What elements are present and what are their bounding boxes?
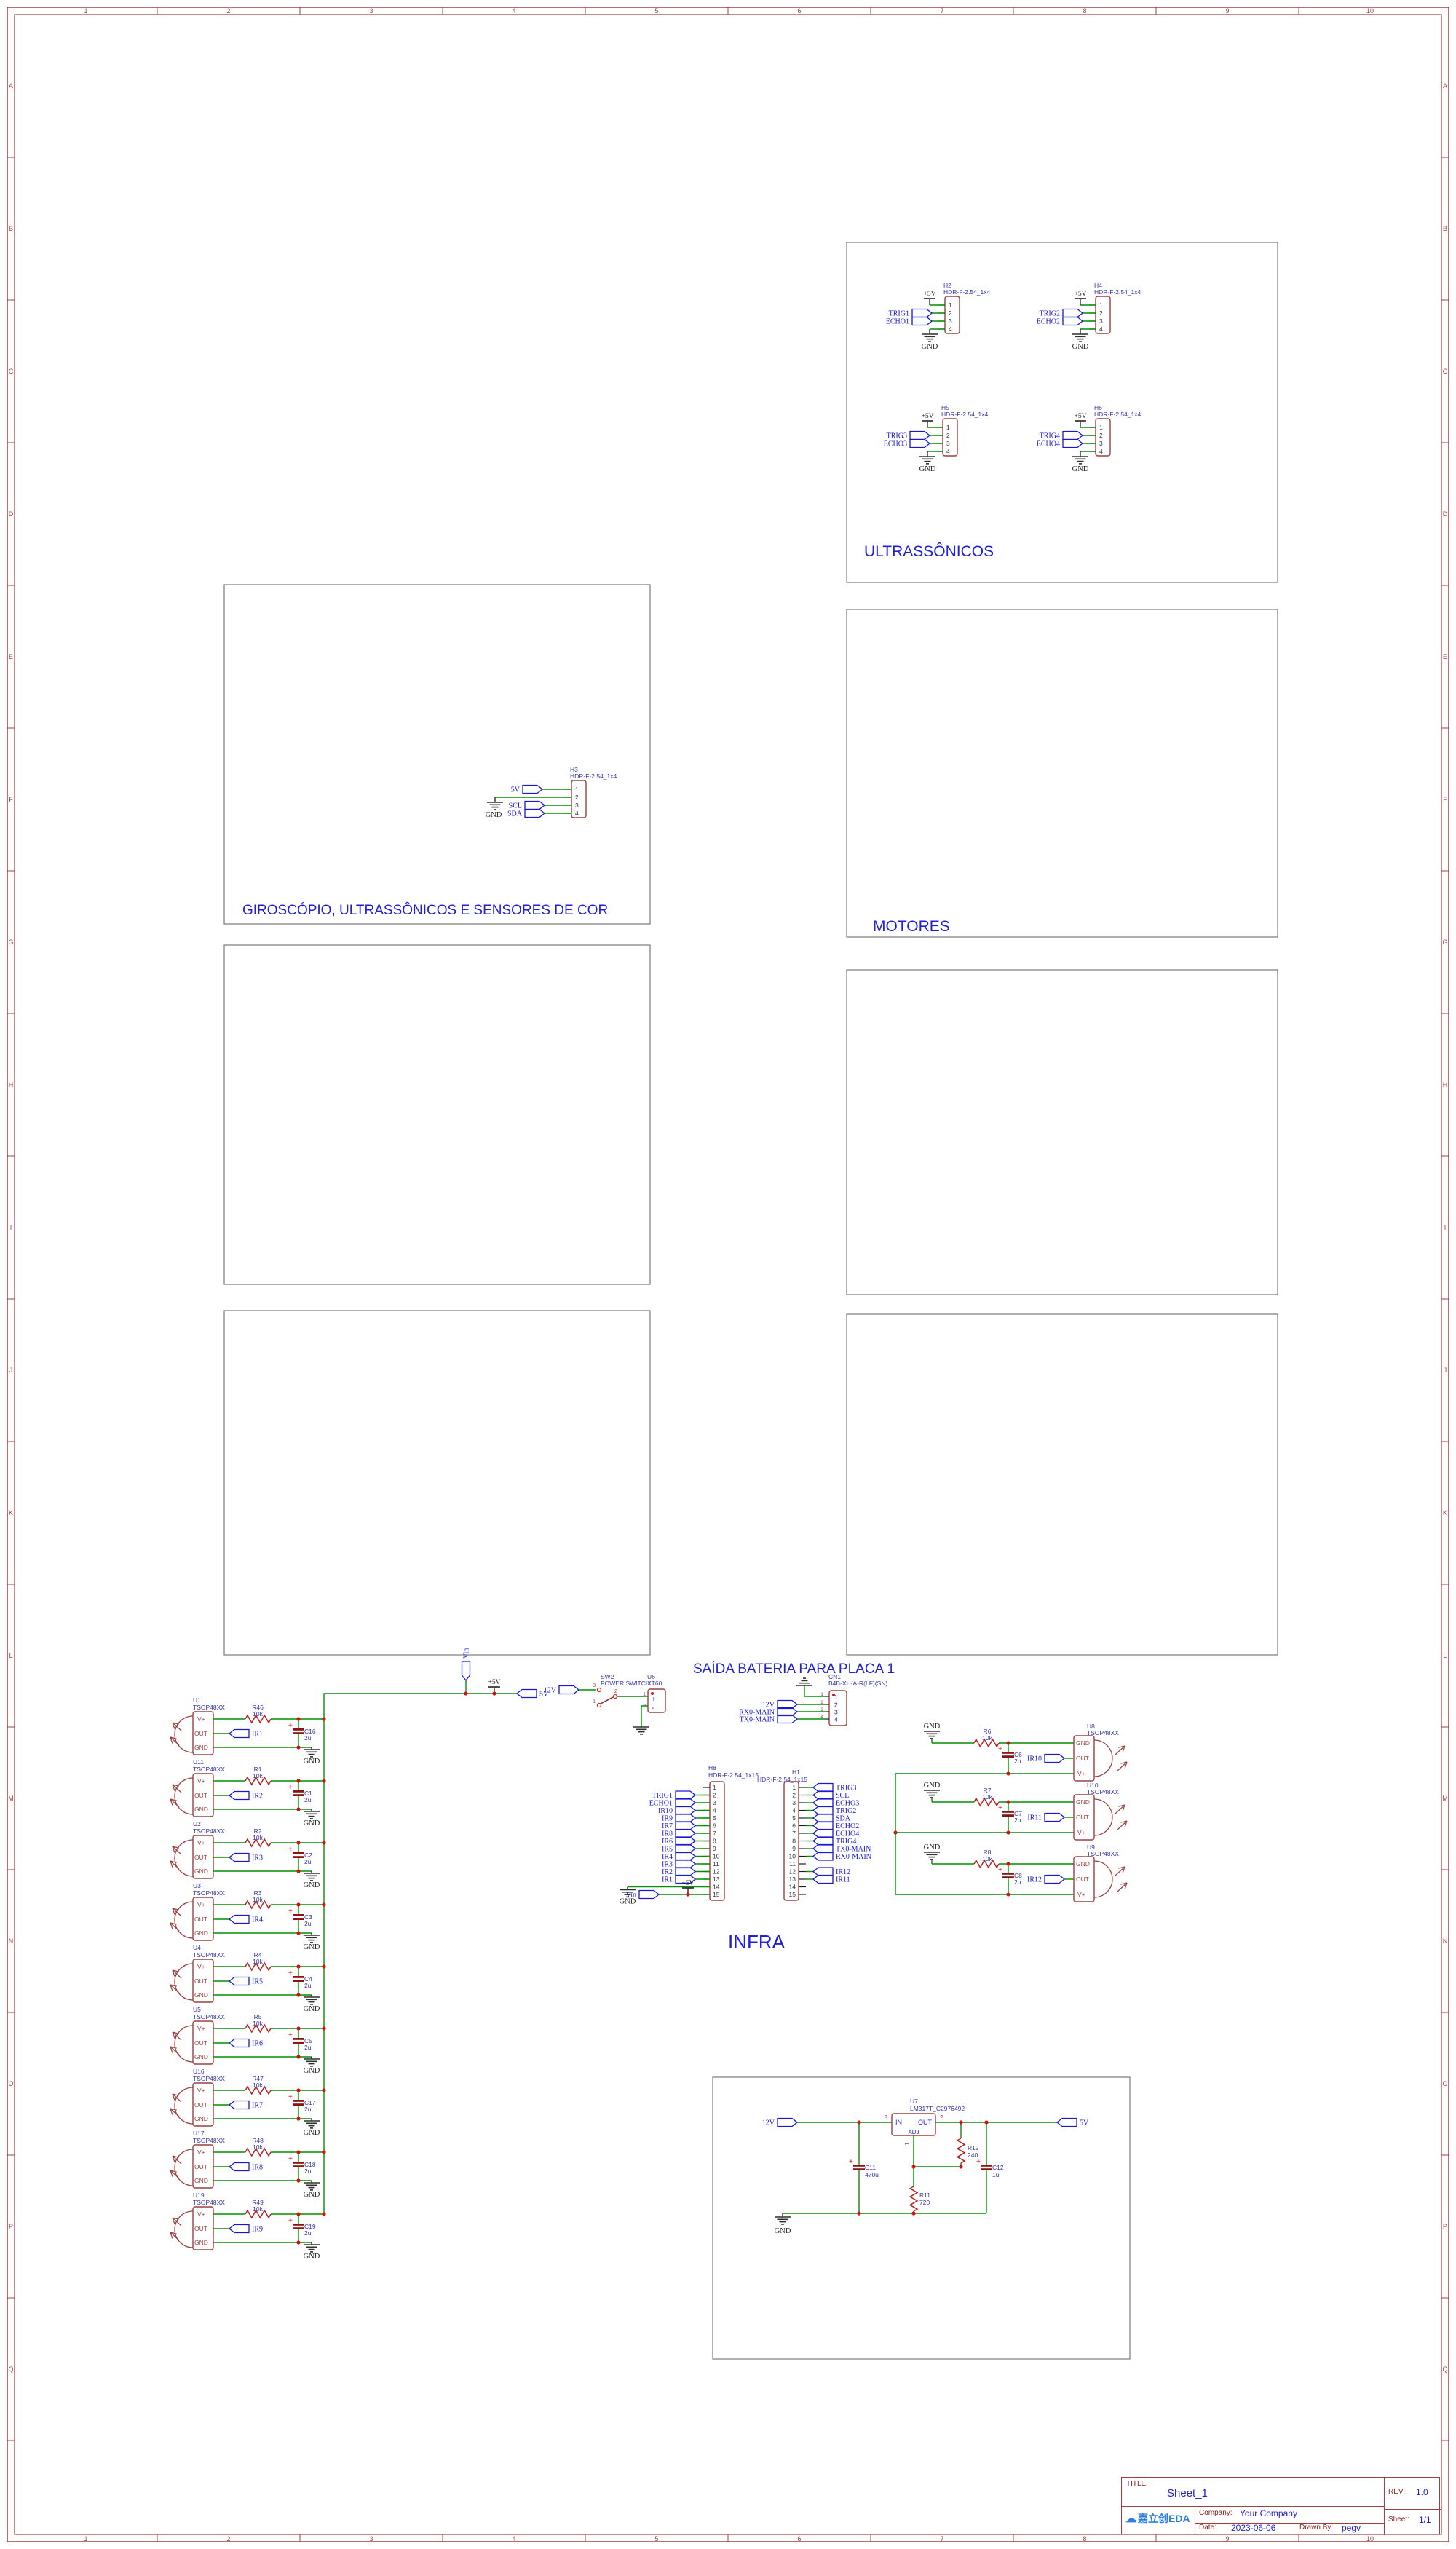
pin-name: OUT xyxy=(194,1730,207,1737)
pin-name: V+ xyxy=(1077,1891,1085,1898)
frame-col-label: 7 xyxy=(940,2535,943,2542)
frame-col-label: 4 xyxy=(512,2535,515,2542)
gnd-label: GND xyxy=(924,1782,941,1790)
frame-row-label: B xyxy=(1443,225,1447,232)
tsop-dome xyxy=(175,2026,193,2062)
net-flag-shape xyxy=(813,1799,833,1807)
p5-label: +5V xyxy=(922,413,934,420)
junction-dot xyxy=(296,1807,300,1811)
date-label: Date: xyxy=(1199,2524,1216,2532)
net-name: TRIG2 xyxy=(836,1807,856,1815)
junction-dot xyxy=(857,2120,860,2124)
header-body xyxy=(571,780,586,818)
pin-name: V+ xyxy=(197,1963,205,1970)
pin-name: V+ xyxy=(197,2210,205,2218)
header-body xyxy=(943,419,957,456)
net-name: SDA xyxy=(836,1815,851,1823)
net-name: IR4 xyxy=(662,1853,673,1861)
pin-name: GND xyxy=(194,1806,208,1813)
tsop-dome xyxy=(175,1840,193,1876)
frame-col-label: 6 xyxy=(797,2535,801,2542)
cap-polarity: + xyxy=(288,2217,293,2225)
pin-name: V+ xyxy=(197,2149,205,2156)
gnd-label: GND xyxy=(924,1723,941,1731)
tsop-U3[interactable]: U3TSOP48XXV+OUTGNDR310kIR4+C32uGND xyxy=(170,1882,326,1951)
title-label: TITLE: xyxy=(1126,2480,1148,2488)
component-value: 2u xyxy=(1014,1758,1021,1765)
net-flag-shape xyxy=(676,1860,695,1868)
net-flag-TRIG1[interactable]: TRIG1 xyxy=(889,309,932,318)
net-flag-IR11[interactable]: IR11 xyxy=(1027,1814,1064,1822)
net-flag-IR1[interactable]: IR1 xyxy=(229,1730,263,1739)
net-name: IR7 xyxy=(662,1822,673,1830)
frame-col-label: 8 xyxy=(1083,7,1086,15)
pin-number: 8 xyxy=(792,1838,796,1845)
gnd-label: GND xyxy=(922,343,938,351)
component-value: 10k xyxy=(253,2082,263,2089)
p5-label: +5V xyxy=(1075,413,1087,420)
tsop-dome xyxy=(1094,1740,1112,1777)
tsop-U1[interactable]: U1TSOP48XXV+OUTGNDR4610kIR1+C162uGND xyxy=(170,1696,326,1766)
resistor-zigzag xyxy=(910,2186,917,2211)
frame-row-label: E xyxy=(1443,653,1447,660)
board-connector-CN1[interactable]: CN1B4B-XH-A-R(LF)(SN)11223344 xyxy=(820,1673,887,1726)
net-flag-shape xyxy=(813,1791,833,1799)
section-box-vazio-3 xyxy=(224,1311,650,1655)
junction-dot xyxy=(296,2212,300,2216)
pin-number: 4 xyxy=(834,1716,838,1723)
net-name: ECHO1 xyxy=(886,318,909,326)
header-H8[interactable]: H8HDR-F-2.54_1x15123456789101112131415TR… xyxy=(620,1764,759,1906)
junction-dot xyxy=(1006,1830,1010,1834)
junction-dot xyxy=(1006,1771,1010,1775)
header-H4[interactable]: H4HDR-F-2.54_1x41234+5VTRIG2ECHO2GND xyxy=(1037,282,1142,351)
tsop-U4[interactable]: U4TSOP48XXV+OUTGNDR410kIR5+C42uGND xyxy=(170,1944,326,2013)
pin-name: OUT xyxy=(194,2163,207,2170)
net-flag-IR3[interactable]: IR3 xyxy=(229,1854,263,1862)
pin-name: GND xyxy=(194,2115,208,2122)
net-name: 12V xyxy=(762,2119,775,2127)
net-flag-SCL[interactable]: SCL xyxy=(509,802,545,810)
net-flag-IR10[interactable]: IR10 xyxy=(1027,1755,1064,1763)
net-flag-IR5[interactable]: IR5 xyxy=(229,1977,263,1986)
net-flag-ECHO4[interactable]: ECHO4 xyxy=(1037,440,1083,448)
company-label: Company: xyxy=(1199,2509,1233,2517)
pin-name: - xyxy=(652,1704,654,1712)
frame-row-label: I xyxy=(1444,1224,1447,1231)
logo-text: 嘉立创EDA xyxy=(1138,2513,1190,2524)
component-value: 2u xyxy=(304,1920,312,1927)
junction-dot xyxy=(322,1779,325,1782)
pin-number: 4 xyxy=(946,448,950,455)
pin-number: 4 xyxy=(792,1807,796,1814)
junction-dot xyxy=(296,2150,300,2154)
tsop-dome xyxy=(175,2149,193,2186)
net-flag-TRIG3[interactable]: TRIG3 xyxy=(887,432,930,440)
frame-col-label: 5 xyxy=(654,2535,658,2542)
tsop-U11[interactable]: U11TSOP48XXV+OUTGNDR110kIR2+C12uGND xyxy=(170,1758,326,1827)
net-flag-TX0-MAIN[interactable]: TX0-MAIN xyxy=(740,1715,797,1724)
net-flag-IR8[interactable]: IR8 xyxy=(229,2163,263,2172)
pin-number: 5 xyxy=(792,1814,796,1822)
frame-row-label: P xyxy=(9,2223,13,2230)
pin-number: 11 xyxy=(713,1860,719,1868)
net-flag-shape xyxy=(1045,1755,1064,1763)
net-flag-shape xyxy=(1045,1814,1064,1822)
net-flag-IR12[interactable]: IR12 xyxy=(1027,1876,1064,1884)
pin-number: 4 xyxy=(713,1807,716,1814)
net-flag-shape xyxy=(676,1868,695,1876)
section-box-motores xyxy=(847,609,1278,937)
tsop-U17[interactable]: U17TSOP48XXV+OUTGNDR4810kIR8+C182uGND xyxy=(170,2130,326,2199)
tsop-U19[interactable]: U19TSOP48XXV+OUTGNDR4910kIR9+C192uGND xyxy=(170,2192,326,2261)
ultrasonic-headers: H2HDR-F-2.54_1x41234+5VTRIG1ECHO1GNDH4HD… xyxy=(884,282,1142,473)
pin-number: 2 xyxy=(1099,309,1103,317)
net-flag-IR4[interactable]: IR4 xyxy=(229,1916,263,1924)
section-box-vazio-1 xyxy=(224,945,650,1284)
component-value: 10k xyxy=(253,1710,263,1718)
pin-number: 14 xyxy=(789,1884,796,1891)
net-name: IR12 xyxy=(1027,1876,1042,1884)
junction-dot xyxy=(322,1964,325,1968)
net-name: TRIG3 xyxy=(887,432,907,440)
net-name: IR6 xyxy=(252,2040,263,2048)
net-flag-IR6[interactable]: IR6 xyxy=(229,2039,263,2048)
component-value: TSOP48XX xyxy=(193,1889,225,1897)
component-value: HDR-F-2.54_1x4 xyxy=(1094,411,1142,418)
component-value: 10k xyxy=(982,1734,992,1742)
pin-name: OUT xyxy=(194,2039,207,2047)
pin-name: V+ xyxy=(197,1715,205,1723)
ref-designator: H8 xyxy=(708,1764,716,1771)
pin-number: 2 xyxy=(713,1792,716,1799)
frame-col-label: 7 xyxy=(940,7,943,15)
frame-row-label: E xyxy=(9,653,13,660)
net-flag-ECHO3[interactable]: ECHO3 xyxy=(884,440,930,448)
junction-dot xyxy=(296,1931,300,1935)
component-value: HDR-F-2.54_1x15 xyxy=(757,1776,807,1783)
frame-row-label: C xyxy=(1443,368,1448,375)
tsop-dome xyxy=(175,2087,193,2124)
net-name: IR4 xyxy=(252,1916,263,1924)
component-value: POWER SWITCH xyxy=(601,1680,650,1687)
pin-number: 15 xyxy=(789,1891,796,1898)
ref-designator: U17 xyxy=(193,2130,205,2137)
gnd-label: GND xyxy=(775,2227,791,2235)
pin-number: 8 xyxy=(713,1838,716,1845)
net-flag-5V[interactable]: 5V xyxy=(1057,2119,1089,2127)
net-name: 5V xyxy=(511,786,521,794)
pin-number: 10 xyxy=(789,1853,796,1860)
net-flag-shape xyxy=(676,1799,695,1807)
tsop-U10[interactable]: GNDR710k+C72uIR11U10TSOP48XXGNDOUTV+ xyxy=(895,1782,1127,1840)
ref-designator: R12 xyxy=(968,2144,979,2151)
net-flag-shape xyxy=(910,432,930,440)
junction-dot xyxy=(296,2240,300,2244)
net-name: 5V xyxy=(1080,2119,1089,2127)
junction-dot xyxy=(959,2120,962,2124)
net-flag-shape xyxy=(229,1977,249,1985)
cap-polarity: + xyxy=(288,2155,293,2163)
net-name: Vin xyxy=(626,1892,636,1900)
pin-number: 13 xyxy=(789,1876,796,1883)
pin-number: 4 xyxy=(1099,325,1103,333)
pin-name: V+ xyxy=(197,1777,205,1785)
gnd-label: GND xyxy=(486,811,502,819)
net-flag-shape xyxy=(1063,309,1083,317)
net-flag-IR9[interactable]: IR9 xyxy=(229,2225,263,2234)
frame-row-label: P xyxy=(1443,2223,1447,2230)
net-name: TRIG3 xyxy=(836,1785,856,1793)
net-name: IR1 xyxy=(662,1876,673,1884)
pin-number: 12 xyxy=(713,1868,720,1876)
net-flag-5V[interactable]: 5V xyxy=(511,786,542,794)
section-label: SAÍDA BATERIA PARA PLACA 1 xyxy=(693,1661,895,1677)
tsop-array-right: GNDR610k+C62uIR10U8TSOP48XXGNDOUTV+GNDR7… xyxy=(893,1723,1127,1902)
pin-number: 4 xyxy=(949,325,952,333)
header-H1[interactable]: H1HDR-F-2.54_1x15123456789101112131415TR… xyxy=(757,1769,871,1900)
junction-dot xyxy=(296,1964,300,1968)
tsop-U8[interactable]: GNDR610k+C62uIR10U8TSOP48XXGNDOUTV+ xyxy=(895,1723,1127,1781)
component-value: 2u xyxy=(304,2044,312,2051)
net-flag-12V[interactable]: 12V xyxy=(762,2119,797,2127)
junction-dot xyxy=(322,1841,325,1844)
pin-number: 2 xyxy=(575,794,579,801)
net-name: 12V xyxy=(544,1687,557,1695)
section-box-giroscopio xyxy=(224,585,650,924)
net-flag-shape xyxy=(813,1868,833,1876)
pin-number: 2 xyxy=(834,1702,838,1709)
section-label: GIROSCÓPIO, ULTRASSÔNICOS E SENSORES DE … xyxy=(242,902,608,918)
net-name: IR2 xyxy=(252,1793,263,1801)
gnd-label: GND xyxy=(304,2129,320,2137)
net-name: IR9 xyxy=(662,1815,673,1823)
pin-number: 13 xyxy=(713,1876,720,1883)
titleblock-divider xyxy=(1195,2506,1195,2535)
net-flag-SDA[interactable]: SDA xyxy=(507,810,545,818)
frame-row-label: I xyxy=(10,1224,12,1231)
regulator-U7[interactable]: U7LM317T_C2976492INOUTADJ321 xyxy=(885,2098,965,2146)
pin-name: OUT xyxy=(194,2101,207,2109)
pin-number: 2 xyxy=(940,2114,943,2121)
frame-row-label: C xyxy=(9,368,14,375)
component-value: 10k xyxy=(253,2205,263,2213)
switch-contact xyxy=(598,1704,601,1707)
frame-col-label: 9 xyxy=(1225,7,1229,15)
net-flag-TRIG2[interactable]: TRIG2 xyxy=(1040,309,1083,318)
net-flag-shape xyxy=(676,1830,695,1838)
tsop-dome xyxy=(175,2211,193,2248)
frame-row-label: D xyxy=(9,510,14,518)
net-name: IR9 xyxy=(252,2226,263,2234)
pin-name: GND xyxy=(194,1929,208,1937)
net-flag-shape xyxy=(676,1845,695,1853)
component-value: 10k xyxy=(253,2020,263,2027)
frame-row-label: L xyxy=(1443,1652,1447,1659)
net-flag-shape xyxy=(910,440,930,448)
net-name: ECHO3 xyxy=(884,440,907,448)
net-flag-shape xyxy=(1063,440,1083,448)
section-label: ULTRASSÔNICOS xyxy=(864,543,994,560)
pin-number: 5 xyxy=(713,1814,716,1822)
net-name: IR10 xyxy=(1027,1755,1042,1763)
net-flag-shape xyxy=(676,1791,695,1799)
p5-label: +5V xyxy=(488,1679,501,1686)
header-H3[interactable]: H3HDR-F-2.54_1x412345VGNDSCLSDA xyxy=(486,766,617,819)
net-flag-IR11[interactable]: IR11 xyxy=(813,1876,850,1884)
pin-name: IN xyxy=(895,2119,902,2126)
section-label: MOTORES xyxy=(873,918,950,935)
ref-designator: U4 xyxy=(193,1944,201,1951)
gyro-header: H3HDR-F-2.54_1x412345VGNDSCLSDA xyxy=(486,766,617,819)
tsop-U2[interactable]: U2TSOP48XXV+OUTGNDR210kIR3+C22uGND xyxy=(170,1820,326,1889)
gnd-label: GND xyxy=(1072,465,1089,473)
section-box-vazio-2 xyxy=(847,970,1278,1295)
frame-outer xyxy=(7,7,1449,2542)
junction-dot xyxy=(296,1717,300,1720)
junction-dot xyxy=(1006,1741,1010,1744)
net-flag-ECHO2[interactable]: ECHO2 xyxy=(1037,317,1083,326)
tsop-U16[interactable]: U16TSOP48XXV+OUTGNDR4710kIR7+C172uGND xyxy=(170,2068,326,2137)
header-H2[interactable]: H2HDR-F-2.54_1x41234+5VTRIG1ECHO1GND xyxy=(886,282,991,351)
pin-number: 7 xyxy=(713,1830,716,1837)
junction-dot xyxy=(1006,1862,1010,1865)
resistor-zigzag xyxy=(957,2138,965,2163)
net-flag-shape xyxy=(813,1784,833,1792)
pin-name: V+ xyxy=(197,2087,205,2094)
junction-dot xyxy=(322,2026,325,2030)
gnd-label: GND xyxy=(304,2191,320,2199)
net-flag-IR2[interactable]: IR2 xyxy=(229,1792,263,1801)
wire xyxy=(324,1694,517,2214)
net-flag-shape xyxy=(229,2163,249,2171)
pin-number: 12 xyxy=(789,1868,796,1876)
component-value: 2u xyxy=(1014,1817,1021,1824)
pin-number: 14 xyxy=(713,1884,720,1891)
frame-col-label: 3 xyxy=(369,2535,373,2542)
frame-row-label: B xyxy=(9,225,13,232)
titleblock: TITLE: Sheet_1 REV: 1.0 Sheet: 1/1 Compa… xyxy=(1121,2477,1440,2534)
component-value: 10k xyxy=(253,1834,263,1841)
net-flag-shape xyxy=(813,1876,833,1884)
cap-polarity: + xyxy=(288,2093,293,2101)
gnd-label: GND xyxy=(304,1819,320,1827)
component-value: 2u xyxy=(304,2106,312,2113)
gnd-label: GND xyxy=(304,2253,320,2261)
tsop-U5[interactable]: U5TSOP48XXV+OUTGNDR510kIR6+C52uGND xyxy=(170,2006,326,2075)
switch-contact xyxy=(598,1688,601,1692)
schematic-sheet: 1122334455667788991010AABBCCDDEEFFGGHHII… xyxy=(0,0,1456,2549)
frame-col-label: 3 xyxy=(369,7,373,15)
component-value: 1u xyxy=(992,2171,1000,2178)
pin-number: 9 xyxy=(713,1845,716,1852)
junction-dot xyxy=(296,2178,300,2182)
junction-dot xyxy=(296,1902,300,1906)
net-name: TRIG2 xyxy=(1040,310,1060,318)
net-flag-Vin[interactable]: Vin xyxy=(462,1648,471,1680)
net-flag-shape xyxy=(676,1837,695,1845)
pin-number: 3 xyxy=(792,1799,796,1806)
header-H6[interactable]: H6HDR-F-2.54_1x41234+5VTRIG4ECHO4GND xyxy=(1037,404,1142,473)
frame-row-label: N xyxy=(9,1937,14,1945)
junction-dot xyxy=(296,2055,300,2058)
tsop-U9[interactable]: GNDR810k+C82uIR12U9TSOP48XXGNDOUTV+ xyxy=(895,1843,1127,1902)
net-flag-shape xyxy=(639,1891,659,1899)
pin-name: GND xyxy=(1076,1798,1090,1806)
pin-name: V+ xyxy=(1077,1770,1085,1777)
sheet-frame: 1122334455667788991010AABBCCDDEEFFGGHHII… xyxy=(7,7,1449,2542)
frame-col-label: 2 xyxy=(226,2535,230,2542)
net-flag-shape xyxy=(676,1814,695,1822)
frame-col-label: 8 xyxy=(1083,2535,1086,2542)
connector-body xyxy=(829,1691,847,1726)
component-value: 10k xyxy=(253,1772,263,1779)
net-flag-shape xyxy=(1045,1876,1064,1884)
net-flag-RX0-MAIN[interactable]: RX0-MAIN xyxy=(813,1852,871,1861)
junction-dot xyxy=(322,1902,325,1906)
net-flag-shape xyxy=(813,1852,833,1860)
net-name: IR5 xyxy=(252,1978,263,1986)
net-name: TX0-MAIN xyxy=(740,1716,775,1724)
cap-polarity: + xyxy=(998,1804,1002,1812)
component-value: TSOP48XX xyxy=(193,2075,225,2082)
pin-number: 1 xyxy=(792,1784,796,1791)
wire xyxy=(641,1706,648,1727)
net-flag-shape xyxy=(523,786,542,794)
header-H5[interactable]: H5HDR-F-2.54_1x41234+5VTRIG3ECHO3GND xyxy=(884,404,989,473)
junction-dot xyxy=(1006,1800,1010,1803)
net-name: TRIG1 xyxy=(889,310,909,318)
frame-row-label: L xyxy=(9,1652,12,1659)
frame-row-label: G xyxy=(1442,938,1447,946)
net-flag-shape xyxy=(462,1661,470,1680)
company-value: Your Company xyxy=(1240,2508,1297,2518)
component-value: 10k xyxy=(253,2143,263,2151)
date-value: 2023-06-06 xyxy=(1231,2523,1275,2533)
pin-number: 3 xyxy=(885,2114,888,2121)
pin-name: GND xyxy=(194,2239,208,2246)
frame-inner xyxy=(15,15,1441,2534)
component-value: 10k xyxy=(253,1896,263,1903)
component-value: 2u xyxy=(304,1982,312,1989)
pin-number: 1 xyxy=(834,1694,838,1701)
component-value: 2u xyxy=(304,2167,312,2175)
net-flag-Vin[interactable]: Vin xyxy=(626,1891,659,1900)
frame-col-label: 6 xyxy=(797,7,801,15)
cap-polarity: + xyxy=(998,1866,1002,1874)
component-value: 720 xyxy=(919,2199,930,2206)
pin-number: 3 xyxy=(949,317,952,325)
infra-headers: H8HDR-F-2.54_1x15123456789101112131415TR… xyxy=(620,1764,871,1906)
net-flag-shape xyxy=(813,1830,833,1838)
net-flag-IR7[interactable]: IR7 xyxy=(229,2101,263,2110)
frame-col-label: 4 xyxy=(512,7,515,15)
net-flag-TRIG4[interactable]: TRIG4 xyxy=(1040,432,1083,440)
net-name: ECHO2 xyxy=(1037,318,1060,326)
net-flag-ECHO1[interactable]: ECHO1 xyxy=(886,317,932,326)
component-value: TSOP48XX xyxy=(193,1766,225,1773)
component-value: 2u xyxy=(1014,1878,1021,1886)
net-flag-shape xyxy=(1063,317,1083,325)
ref-designator: U3 xyxy=(193,1882,201,1889)
net-flag-shape xyxy=(525,802,545,810)
frame-row-label: Q xyxy=(1442,2366,1447,2373)
pin-name: + xyxy=(652,1696,656,1704)
frame-row-label: J xyxy=(9,1367,13,1374)
tsop-dome xyxy=(175,1716,193,1752)
tsop-dome xyxy=(175,1778,193,1814)
net-flag-12V[interactable]: 12V xyxy=(544,1686,579,1695)
